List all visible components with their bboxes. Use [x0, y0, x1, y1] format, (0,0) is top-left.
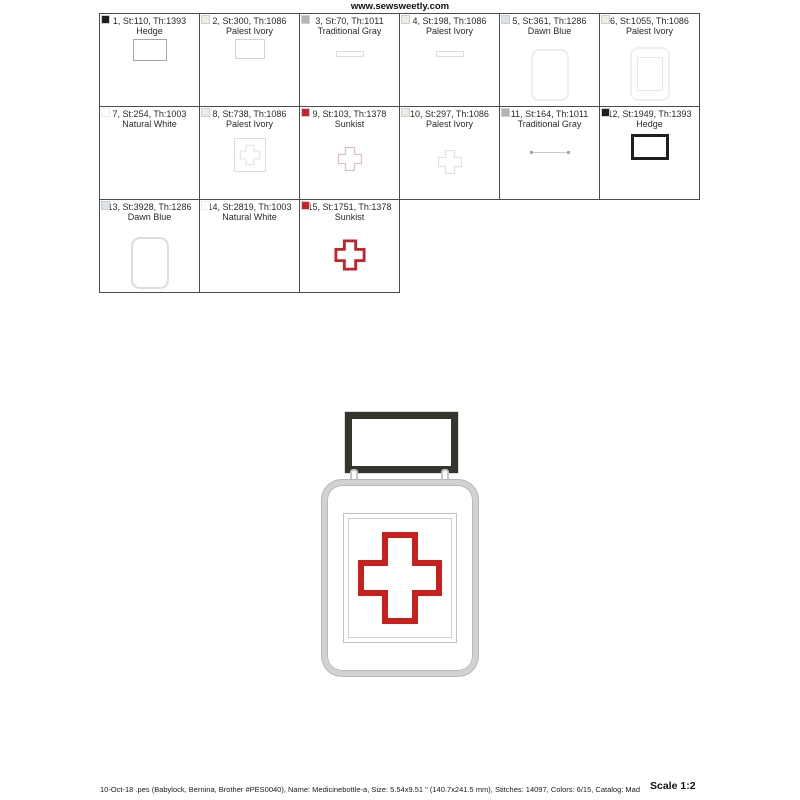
file-info-footer: 10-Oct-18 .pes (Babylock, Bernina, Broth…: [100, 785, 640, 794]
thread-color-swatch: [501, 15, 510, 24]
step-stitch-info: 14, St:2819, Th:1003: [200, 202, 299, 212]
thread-color-name: Sunkist: [300, 119, 399, 129]
thread-color-name: Traditional Gray: [300, 26, 399, 36]
step-stitch-info: 10, St:297, Th:1086: [400, 109, 499, 119]
step-stitch-info: 2, St:300, Th:1086: [200, 16, 299, 26]
thread-color-swatch: [301, 108, 310, 117]
color-step-cell: 15, St:1751, Th:1378 Sunkist: [300, 200, 400, 293]
color-step-cell: 13, St:3928, Th:1286 Dawn Blue: [100, 200, 200, 293]
thread-color-swatch: [401, 108, 410, 117]
thread-color-name: Palest Ivory: [200, 26, 299, 36]
step-stitch-info: 12, St:1949, Th:1393: [600, 109, 699, 119]
step-thumbnail: [200, 36, 299, 59]
thread-color-name: Natural White: [100, 119, 199, 129]
thread-color-swatch: [201, 15, 210, 24]
design-sheet-page: www.sewsweetly.com 1, St:110, Th:1393 He…: [0, 0, 800, 800]
color-step-cell: 2, St:300, Th:1086 Palest Ivory: [200, 14, 300, 107]
rectangle-outline-icon: [235, 39, 265, 59]
bottle-label-inner: [348, 518, 452, 638]
website-header: www.sewsweetly.com: [0, 1, 800, 12]
thread-color-swatch: [601, 15, 610, 24]
color-step-cell: 1, St:110, Th:1393 Hedge: [100, 14, 200, 107]
thread-color-swatch: [301, 15, 310, 24]
step-stitch-info: 4, St:198, Th:1086: [400, 16, 499, 26]
step-stitch-info: 11, St:164, Th:1011: [500, 109, 599, 119]
step-stitch-info: 15, St:1751, Th:1378: [300, 202, 399, 212]
cross-bold-red-icon: [334, 239, 366, 276]
cross-icon: [334, 239, 366, 271]
thread-color-swatch: [101, 15, 110, 24]
step-stitch-info: 3, St:70, Th:1011: [300, 16, 399, 26]
bottle-label: [343, 513, 457, 643]
bar-outline-icon: [336, 51, 364, 57]
bottle-cap: [345, 412, 458, 473]
cross-icon: [337, 146, 363, 172]
color-step-cell: 12, St:1949, Th:1393 Hedge: [600, 107, 700, 200]
step-thumbnail: [600, 129, 699, 160]
rectangle-bold-outline-icon: [631, 134, 669, 160]
thread-color-swatch: [201, 201, 210, 210]
color-step-cell: 6, St:1055, Th:1086 Palest Ivory: [600, 14, 700, 107]
scale-label: Scale 1:2: [650, 780, 696, 792]
step-thumbnail: [600, 36, 699, 101]
thread-color-swatch: [301, 201, 310, 210]
color-step-cell: 5, St:361, Th:1286 Dawn Blue: [500, 14, 600, 107]
thread-color-name: Sunkist: [300, 212, 399, 222]
label-with-cross-icon: [234, 138, 266, 172]
step-thumbnail: [500, 129, 599, 154]
thread-color-name: Palest Ivory: [400, 119, 499, 129]
step-thumbnail: [100, 36, 199, 61]
step-stitch-info: 6, St:1055, Th:1086: [600, 16, 699, 26]
thread-color-swatch: [101, 108, 110, 117]
step-stitch-info: 9, St:103, Th:1378: [300, 109, 399, 119]
step-stitch-info: 13, St:3928, Th:1286: [100, 202, 199, 212]
color-step-cell: 11, St:164, Th:1011 Traditional Gray: [500, 107, 600, 200]
step-thumbnail: [400, 36, 499, 57]
step-stitch-info: 5, St:361, Th:1286: [500, 16, 599, 26]
rounded-rectangle-outline-icon: [131, 237, 169, 289]
thread-color-swatch: [201, 108, 210, 117]
step-thumbnail: [400, 129, 499, 180]
step-thumbnail: [200, 129, 299, 172]
bar-outline-icon: [436, 51, 464, 57]
step-stitch-info: 7, St:254, Th:1003: [100, 109, 199, 119]
design-preview: [322, 412, 478, 677]
bottle-label-outline-icon: [630, 47, 670, 101]
red-cross-icon: [358, 532, 442, 624]
cross-icon: [437, 149, 463, 175]
step-thumbnail: [100, 222, 199, 289]
color-step-cell: 4, St:198, Th:1086 Palest Ivory: [400, 14, 500, 107]
color-sequence-grid: 1, St:110, Th:1393 Hedge 2, St:300, Th:1…: [99, 13, 700, 293]
thread-color-name: Natural White: [200, 212, 299, 222]
color-step-cell: 14, St:2819, Th:1003 Natural White: [200, 200, 300, 293]
cross-light-gray-icon: [437, 149, 463, 180]
thread-color-name: Palest Ivory: [400, 26, 499, 36]
cross-light-red-icon: [337, 146, 363, 177]
thread-color-name: Palest Ivory: [600, 26, 699, 36]
bottle-body-outline-icon: [531, 49, 569, 101]
thread-color-swatch: [101, 201, 110, 210]
step-stitch-info: 1, St:110, Th:1393: [100, 16, 199, 26]
color-step-cell: 3, St:70, Th:1011 Traditional Gray: [300, 14, 400, 107]
color-step-cell: 7, St:254, Th:1003 Natural White: [100, 107, 200, 200]
thread-color-name: Traditional Gray: [500, 119, 599, 129]
color-step-cell: 10, St:297, Th:1086 Palest Ivory: [400, 107, 500, 200]
rectangle-outline-icon: [133, 39, 167, 61]
thread-color-swatch: [501, 108, 510, 117]
basting-line-icon: [530, 151, 570, 154]
thread-color-swatch: [401, 15, 410, 24]
thread-color-name: Dawn Blue: [500, 26, 599, 36]
thread-color-name: Palest Ivory: [200, 119, 299, 129]
cross-icon: [239, 144, 261, 166]
thread-color-name: Dawn Blue: [100, 212, 199, 222]
color-step-cell: 9, St:103, Th:1378 Sunkist: [300, 107, 400, 200]
color-step-cell: 8, St:738, Th:1086 Palest Ivory: [200, 107, 300, 200]
thread-color-swatch: [601, 108, 610, 117]
thread-color-name: Hedge: [600, 119, 699, 129]
step-thumbnail: [300, 222, 399, 276]
step-thumbnail: [300, 36, 399, 57]
bottle-body: [322, 480, 478, 676]
step-thumbnail: [300, 129, 399, 177]
thread-color-name: Hedge: [100, 26, 199, 36]
step-thumbnail: [500, 36, 599, 101]
step-stitch-info: 8, St:738, Th:1086: [200, 109, 299, 119]
